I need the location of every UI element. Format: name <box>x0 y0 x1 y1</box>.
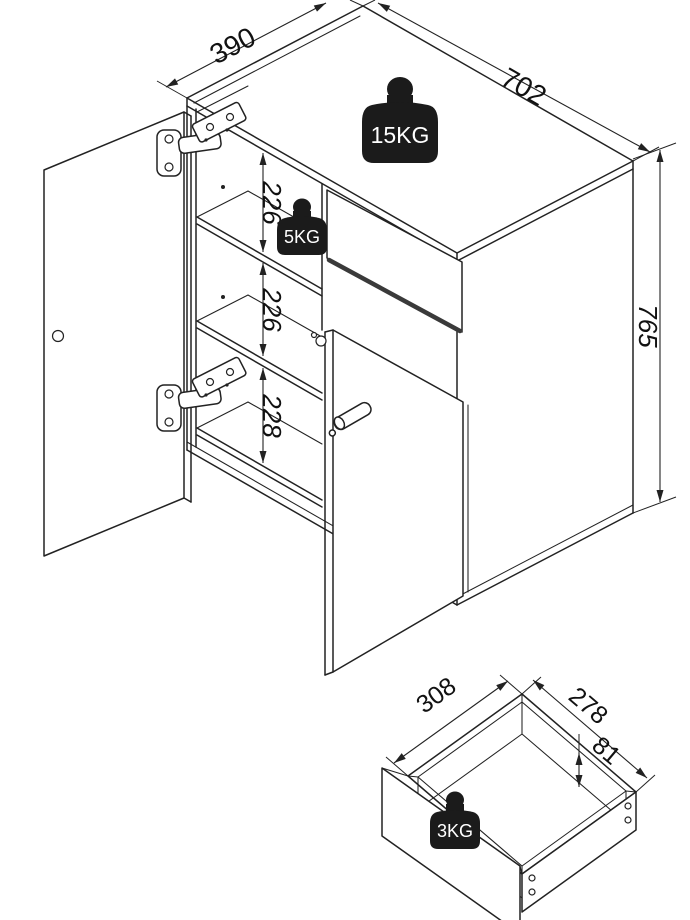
furniture-technical-drawing: 390 702 765 226 226 228 15KG <box>0 0 690 920</box>
right-door-open <box>312 330 469 675</box>
dim-height-label: 765 <box>633 304 663 348</box>
dim-shelf-spacing-3: 228 <box>257 393 287 438</box>
door-knob <box>316 336 326 346</box>
dim-shelf-spacing-1: 226 <box>257 180 287 225</box>
shelf-load-label: 5KG <box>284 227 320 247</box>
shelf-pin-hole <box>221 185 225 189</box>
top-load-label: 15KG <box>371 122 430 148</box>
left-door-open <box>44 112 191 556</box>
screw-hole <box>625 803 631 809</box>
door-knob-hole <box>53 331 64 342</box>
drawer-dim-depth-label: 278 <box>563 682 613 730</box>
dim-shelf-spacing-2: 226 <box>257 287 287 332</box>
drawer-load-label: 3KG <box>437 821 473 841</box>
cabinet-drawing: 390 702 765 226 226 228 15KG <box>44 0 676 675</box>
screw-hole <box>529 889 535 895</box>
screw-hole <box>529 875 535 881</box>
hinge <box>157 101 247 176</box>
shelf-pin-hole <box>221 295 225 299</box>
drawer-detail-drawing: 308 278 81 3KG <box>382 672 655 920</box>
drawer-box <box>382 694 636 920</box>
door-knob-cap <box>312 333 317 338</box>
screw-hole <box>625 817 631 823</box>
drawer-dim-width-label: 308 <box>411 672 461 719</box>
drawing-svg: 390 702 765 226 226 228 15KG <box>0 0 690 920</box>
